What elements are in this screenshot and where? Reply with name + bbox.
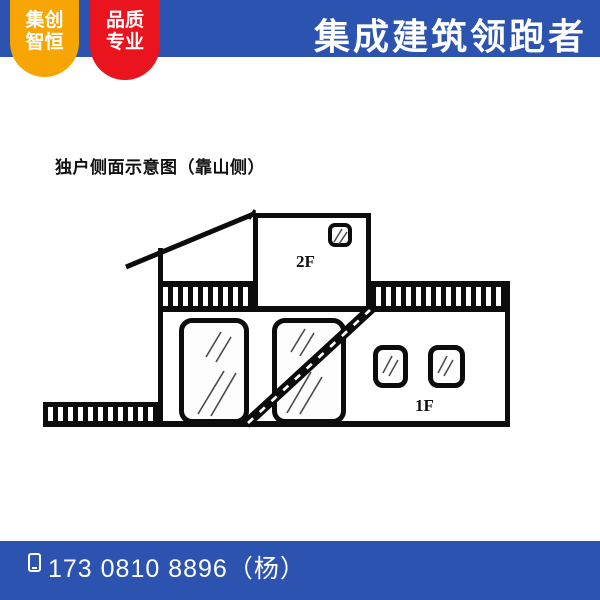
ground-rail-bottom-bar	[43, 421, 165, 427]
second-floor-window	[328, 223, 352, 247]
ground-rail-balusters	[43, 407, 165, 421]
brand-badge-orange: 集创 智恒	[10, 0, 79, 77]
first-floor-window-small-1	[373, 345, 408, 388]
railing-balusters	[158, 287, 253, 306]
company-slogan: 集成建筑领跑者	[314, 8, 587, 60]
mobile-phone-icon	[28, 553, 41, 572]
contact-phone-number: 173 0810 8896（杨）	[48, 541, 306, 600]
balcony-railing-left	[158, 281, 253, 306]
roof-line	[126, 213, 256, 267]
quality-badge-red: 品质 专业	[90, 0, 160, 80]
first-floor-window-large-2	[272, 318, 346, 424]
ground-railing-strip	[43, 402, 165, 427]
first-floor-window-large-1	[179, 318, 249, 424]
floor-label-2f: 2F	[296, 252, 315, 272]
first-floor-window-small-2	[428, 345, 465, 388]
floor-label-1f: 1F	[415, 396, 434, 416]
quality-badge-line2: 专业	[90, 32, 160, 54]
brand-badge-line1: 集创	[10, 10, 79, 32]
quality-badge-line1: 品质	[90, 10, 160, 32]
diagram-title: 独户侧面示意图（靠山侧）	[55, 153, 265, 178]
brand-badge-line2: 智恒	[10, 32, 79, 54]
bottom-banner: 173 0810 8896（杨）	[0, 541, 600, 600]
